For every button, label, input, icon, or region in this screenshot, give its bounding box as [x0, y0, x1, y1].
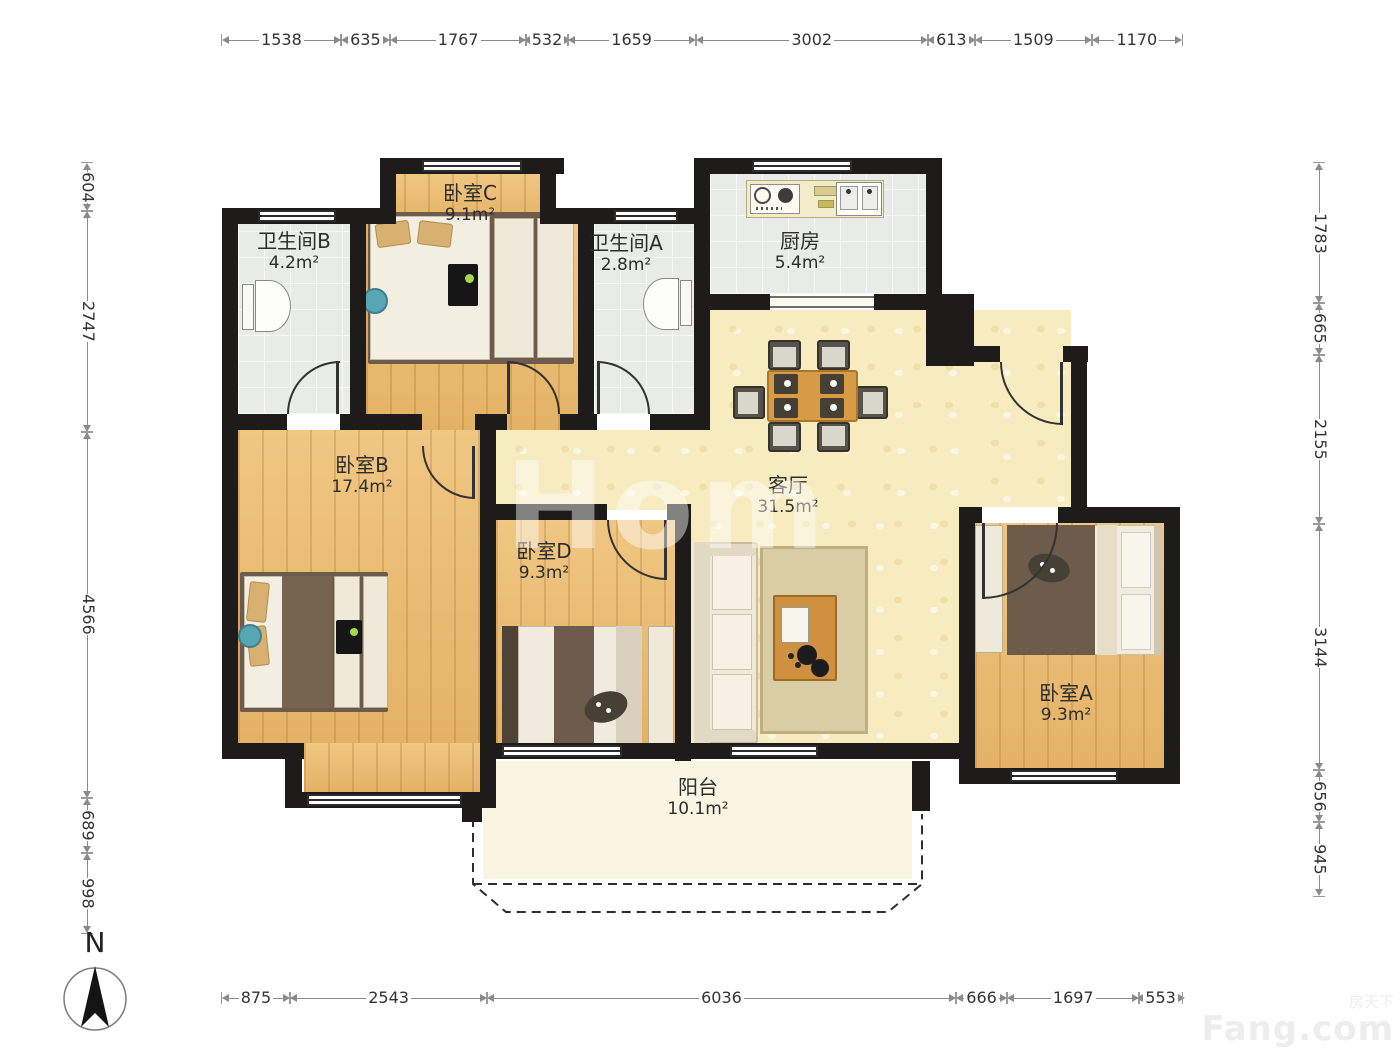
- dim-segment: 2543: [290, 986, 487, 1010]
- wall: [694, 294, 770, 310]
- dim-segment: 532: [526, 28, 567, 52]
- dim-label: 1659: [609, 32, 654, 49]
- room-label-bathroom-a: 卫生间A2.8m²: [589, 232, 663, 275]
- dim-segment: 1659: [568, 28, 696, 52]
- dimension-line-right: 178366521553144656945: [1306, 163, 1332, 896]
- dim-segment: 1783: [1306, 163, 1332, 303]
- door-leaf: [597, 361, 600, 414]
- dim-label: 1170: [1114, 32, 1159, 49]
- window: [422, 160, 522, 172]
- dim-label: 656: [1309, 781, 1330, 812]
- dim-segment: 689: [74, 798, 100, 853]
- wall: [1071, 346, 1087, 507]
- dim-label: 1538: [259, 32, 304, 49]
- door-leaf: [1060, 362, 1063, 425]
- window: [730, 745, 818, 757]
- dim-segment: 666: [956, 986, 1008, 1010]
- room-label-bedroom-b: 卧室B17.4m²: [331, 454, 392, 497]
- wall: [926, 158, 942, 310]
- dim-segment: 2155: [1306, 355, 1332, 524]
- dim-segment: 1538: [222, 28, 341, 52]
- dimension-line-left: 60427474566689998: [74, 163, 100, 933]
- north-indicator: N: [55, 926, 135, 1037]
- dim-segment: 1697: [1007, 986, 1139, 1010]
- dimension-line-top: 153863517675321659300261315091170: [222, 28, 1182, 52]
- brand-watermark-logo: Fang.com: [1201, 1012, 1394, 1046]
- dim-label: 4566: [77, 594, 98, 635]
- dim-label: 553: [1143, 990, 1178, 1007]
- dim-label: 604: [77, 172, 98, 203]
- wall: [350, 208, 396, 224]
- dim-segment: 604: [74, 163, 100, 211]
- dim-segment: 635: [341, 28, 390, 52]
- room-label-balcony: 阳台10.1m²: [667, 776, 728, 819]
- window: [307, 794, 462, 806]
- dim-label: 1697: [1051, 990, 1096, 1007]
- dim-segment: 1767: [390, 28, 527, 52]
- wall: [340, 414, 422, 430]
- dim-label: 689: [77, 810, 98, 841]
- window: [752, 160, 852, 172]
- window: [502, 745, 622, 757]
- dim-segment: 4566: [74, 432, 100, 798]
- dim-segment: 1170: [1092, 28, 1182, 52]
- wall: [475, 414, 507, 430]
- dim-segment: 3144: [1306, 524, 1332, 771]
- wall: [974, 346, 1000, 362]
- wall: [462, 792, 482, 822]
- wall: [1164, 507, 1180, 784]
- dim-segment: 3002: [696, 28, 928, 52]
- wall: [650, 414, 710, 430]
- dim-label: 613: [934, 32, 969, 49]
- dim-label: 635: [348, 32, 383, 49]
- dim-label: 1767: [436, 32, 481, 49]
- center-watermark: Hom: [505, 438, 831, 577]
- dim-segment: 1509: [975, 28, 1092, 52]
- north-label: N: [55, 926, 135, 959]
- dim-segment: 553: [1139, 986, 1182, 1010]
- room-label-bedroom-c: 卧室C9.1m²: [443, 182, 497, 225]
- dim-label: 665: [1309, 314, 1330, 345]
- dim-segment: 998: [74, 853, 100, 933]
- window: [1010, 770, 1118, 782]
- window: [258, 210, 336, 222]
- dim-segment: 613: [928, 28, 975, 52]
- dim-label: 945: [1309, 844, 1330, 875]
- brand-watermark: 房天下 Fang.com: [1201, 991, 1394, 1046]
- dim-segment: 656: [1306, 770, 1332, 821]
- north-arrow-icon: [59, 959, 131, 1033]
- room-label-kitchen: 厨房5.4m²: [775, 230, 825, 273]
- window: [614, 210, 678, 222]
- dim-label: 875: [239, 990, 274, 1007]
- dim-label: 1509: [1011, 32, 1056, 49]
- wall: [222, 414, 287, 430]
- dim-label: 2155: [1309, 419, 1330, 460]
- wall: [912, 761, 930, 811]
- wall: [874, 294, 942, 310]
- door-leaf: [507, 361, 510, 414]
- wall: [222, 208, 238, 759]
- dim-label: 6036: [699, 990, 744, 1007]
- dim-segment: 945: [1306, 822, 1332, 896]
- dim-segment: 2747: [74, 211, 100, 431]
- wall: [350, 208, 366, 430]
- dim-label: 2747: [77, 301, 98, 342]
- wall: [1058, 507, 1180, 523]
- dim-label: 998: [77, 878, 98, 909]
- dim-label: 666: [964, 990, 999, 1007]
- door-leaf: [336, 361, 339, 414]
- dim-segment: 6036: [487, 986, 955, 1010]
- dim-segment: 665: [1306, 303, 1332, 355]
- room-label-bathroom-b: 卫生间B4.2m²: [257, 230, 331, 273]
- dim-label: 1783: [1309, 213, 1330, 254]
- dim-label: 3002: [789, 32, 834, 49]
- door-leaf: [982, 523, 985, 599]
- dim-label: 532: [530, 32, 565, 49]
- dim-segment: 875: [222, 986, 290, 1010]
- wall: [560, 414, 597, 430]
- wall: [480, 430, 496, 745]
- dimension-line-bottom: 875254360366661697553: [222, 986, 1182, 1010]
- room-label-bedroom-a: 卧室A9.3m²: [1039, 682, 1093, 725]
- dim-label: 3144: [1309, 627, 1330, 668]
- dim-label: 2543: [366, 990, 411, 1007]
- door-leaf: [472, 446, 475, 499]
- floorplan-canvas: 153863517675321659300261315091170 875254…: [0, 0, 1400, 1050]
- kitchen-pass-opening: [770, 296, 874, 308]
- wall: [959, 507, 975, 768]
